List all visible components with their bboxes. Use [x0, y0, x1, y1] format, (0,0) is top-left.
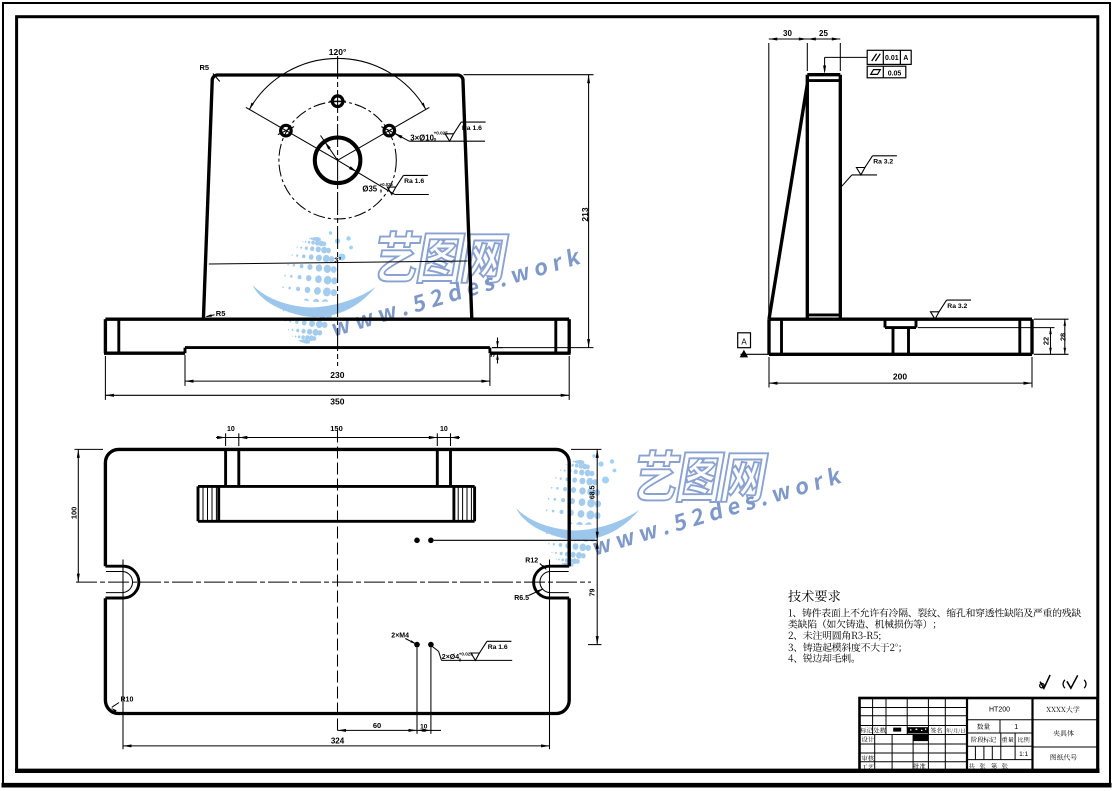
svg-text:200: 200	[893, 372, 907, 382]
svg-text:A: A	[903, 55, 908, 62]
svg-text:R5: R5	[216, 309, 226, 318]
svg-text:3°: 3°	[334, 255, 341, 264]
svg-text:5: 5	[489, 353, 496, 357]
svg-text:120°: 120°	[329, 47, 347, 57]
svg-text:10: 10	[420, 723, 428, 730]
svg-text:3×Ø10: 3×Ø10	[410, 133, 434, 142]
svg-text:HT200: HT200	[989, 707, 1010, 714]
svg-text:0.05: 0.05	[888, 70, 902, 77]
svg-text:1: 1	[1014, 724, 1018, 731]
svg-text:Ra 1.6: Ra 1.6	[488, 644, 508, 651]
svg-text:150: 150	[330, 424, 343, 433]
svg-text:10: 10	[440, 426, 448, 433]
svg-text:R12: R12	[525, 558, 538, 565]
svg-text:Ra 3.2: Ra 3.2	[947, 303, 967, 310]
svg-text:R6.5: R6.5	[514, 595, 529, 602]
svg-text:Ra 1.6: Ra 1.6	[462, 125, 482, 132]
svg-text:350: 350	[330, 397, 344, 407]
svg-text:R5: R5	[200, 63, 210, 72]
svg-text:68.5: 68.5	[589, 485, 596, 499]
svg-text:Ø35: Ø35	[362, 184, 377, 193]
svg-text:A: A	[741, 338, 747, 347]
svg-text:R10: R10	[121, 697, 134, 704]
svg-text:2×Ø4: 2×Ø4	[442, 654, 459, 661]
svg-text:324: 324	[331, 736, 345, 745]
svg-text:30: 30	[783, 29, 792, 38]
svg-text:0.01: 0.01	[885, 55, 899, 62]
svg-text:Ra 3.2: Ra 3.2	[873, 159, 893, 166]
svg-text:25: 25	[819, 29, 828, 38]
svg-text:1:1: 1:1	[1019, 751, 1028, 758]
svg-text:100: 100	[69, 507, 78, 520]
svg-text:60: 60	[373, 721, 381, 730]
svg-text:Ra 1.6: Ra 1.6	[404, 178, 424, 185]
svg-text:213: 213	[580, 207, 590, 221]
svg-text:22: 22	[1041, 337, 1050, 345]
svg-text:230: 230	[330, 370, 344, 380]
svg-text:0: 0	[434, 137, 437, 142]
svg-text:0: 0	[459, 657, 462, 662]
svg-text:2×M4: 2×M4	[391, 632, 409, 639]
svg-text:28: 28	[1059, 333, 1068, 341]
svg-text:+0.025: +0.025	[380, 182, 394, 187]
svg-text:10: 10	[227, 426, 235, 433]
svg-text:79: 79	[589, 589, 596, 597]
